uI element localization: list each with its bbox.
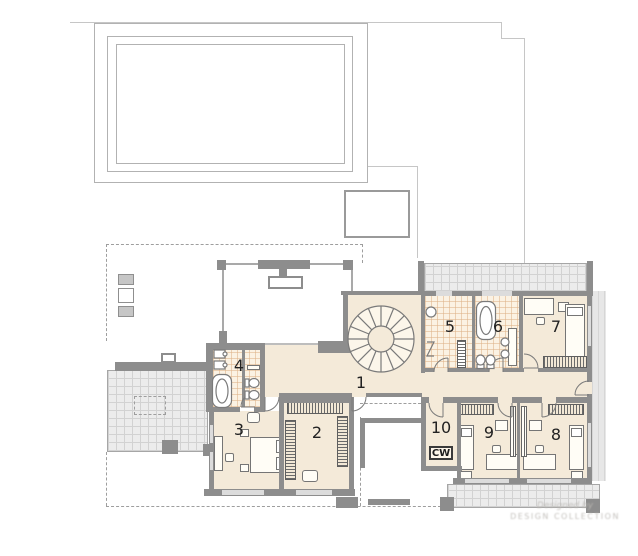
roof-dashed-right <box>362 244 363 263</box>
roof-dashed-top <box>106 244 363 245</box>
floor-plan: 1 2 3 4 5 6 7 8 9 10 CW Designed by DESI… <box>0 0 638 556</box>
nightstand-icon <box>240 464 249 472</box>
floor-step-line <box>263 343 320 345</box>
property-line-step-v <box>501 22 502 39</box>
chair-icon <box>225 453 234 462</box>
desk-icon <box>524 298 554 315</box>
terrace-pier <box>162 440 178 454</box>
wall <box>279 403 284 489</box>
wall-post <box>217 260 226 270</box>
wall-stub <box>219 331 227 343</box>
window-icon <box>588 423 591 467</box>
deck-line-v <box>417 166 418 258</box>
door-gap <box>265 393 279 397</box>
property-line-step-h <box>501 38 525 39</box>
wall-pier <box>336 497 358 508</box>
terrace-parapet <box>115 362 209 371</box>
wall <box>472 295 475 368</box>
wall <box>206 343 213 411</box>
planter-icon <box>118 288 134 303</box>
chair-icon <box>492 445 501 453</box>
utility-label-cw: CW <box>429 446 453 460</box>
wall <box>517 403 520 478</box>
wall <box>260 345 265 407</box>
planter-icon <box>118 274 134 285</box>
chair-icon <box>536 317 545 325</box>
planter-icon <box>118 306 134 317</box>
wardrobe-shelving-icon <box>337 416 348 467</box>
wall <box>206 343 265 350</box>
door-gap <box>524 368 538 372</box>
bookshelf-icon <box>521 406 527 457</box>
wall <box>368 499 410 505</box>
wardrobe-shelving-icon <box>287 402 343 414</box>
lower-dashed-corridor <box>360 403 421 404</box>
balcony-south <box>447 484 600 508</box>
pillow-icon <box>567 307 583 316</box>
window-icon <box>527 479 571 483</box>
terrace-skylight-dashed <box>134 396 166 415</box>
wardrobe-shelving-icon <box>548 404 584 415</box>
pool-outline-inner <box>116 44 345 164</box>
wall <box>254 407 265 412</box>
east-roof-strip <box>592 291 606 481</box>
window-icon <box>482 291 512 296</box>
wall <box>360 418 422 423</box>
wall <box>587 372 592 382</box>
balcony-south-pier-east <box>586 499 600 513</box>
ottoman-icon <box>302 470 318 482</box>
roof-dashed-left <box>106 244 107 341</box>
door-gap <box>489 368 503 372</box>
side-table-icon <box>495 420 508 431</box>
chair-icon <box>535 445 544 453</box>
watermark-caps-line: DESIGN COLLECTION <box>494 512 636 521</box>
balcony-south-pier-west <box>440 497 454 511</box>
wall <box>366 393 422 397</box>
window-icon <box>436 291 452 296</box>
cabinet-icon <box>247 412 260 423</box>
wall <box>341 291 425 295</box>
wall <box>421 291 425 373</box>
pillow-icon <box>571 428 582 437</box>
stair-hall-floor <box>345 295 421 372</box>
window-icon <box>210 425 213 443</box>
wall <box>421 397 426 471</box>
room-label-6: 6 <box>493 319 503 335</box>
door-gap <box>498 397 512 403</box>
door-gap <box>542 397 556 403</box>
window-icon <box>588 306 591 346</box>
side-table-icon <box>529 420 542 431</box>
balcony-north-cap-west <box>418 261 424 292</box>
wall <box>457 403 461 478</box>
door-gap <box>429 397 443 403</box>
vanity-icon <box>508 328 517 366</box>
window-icon <box>296 490 332 495</box>
deck-line-h <box>368 166 418 167</box>
wall <box>360 418 365 468</box>
shelf-icon <box>247 365 260 370</box>
room-label-2: 2 <box>312 425 322 441</box>
door-gap <box>352 393 366 397</box>
room-label-9: 9 <box>484 425 494 441</box>
window-icon <box>222 490 264 495</box>
wall <box>343 291 348 341</box>
door-gap <box>434 368 448 372</box>
desk-icon <box>523 454 556 470</box>
skylight-box <box>344 190 410 238</box>
radiator-icon <box>457 340 466 368</box>
lower-dashed-left <box>106 452 107 506</box>
room-label-3: 3 <box>234 422 244 438</box>
property-line-right <box>524 38 525 263</box>
room-label-8: 8 <box>551 427 561 443</box>
room-label-1: 1 <box>356 375 366 391</box>
bookshelf-icon <box>510 406 516 457</box>
balcony-north-cap-east <box>587 261 593 292</box>
wall-post <box>343 260 353 270</box>
desk-icon <box>214 436 223 471</box>
window-icon <box>465 479 509 483</box>
wall <box>279 397 354 403</box>
wardrobe-shelving-icon <box>543 356 587 368</box>
window-icon <box>210 452 213 470</box>
wardrobe-shelving-icon <box>458 404 494 415</box>
wardrobe-shelving-icon <box>285 420 296 480</box>
room-label-5: 5 <box>445 319 455 335</box>
room-label-4: 4 <box>234 358 244 374</box>
room-label-7: 7 <box>551 319 561 335</box>
wall <box>318 341 354 353</box>
wall <box>421 466 462 471</box>
lower-dashed-bottom <box>106 506 441 507</box>
door-gap <box>587 382 592 394</box>
fireplace-flue <box>268 276 303 289</box>
pillow-icon <box>461 428 472 437</box>
balcony-north <box>424 263 587 292</box>
chimney-box <box>161 353 176 363</box>
wall <box>519 295 523 368</box>
wall <box>349 397 354 489</box>
room-label-10: 10 <box>431 420 451 436</box>
roof-beam <box>258 260 310 269</box>
